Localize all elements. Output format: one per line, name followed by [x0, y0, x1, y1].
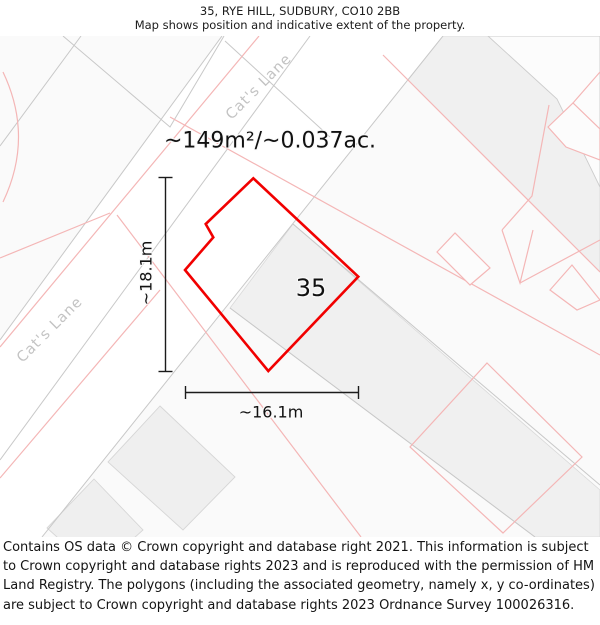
building-outline-pink-2	[550, 265, 600, 310]
page-subtitle: Map shows position and indicative extent…	[0, 18, 600, 32]
boundary-line	[0, 36, 81, 146]
building-block-center	[230, 224, 600, 537]
property-map-page: 35, RYE HILL, SUDBURY, CO10 2BB Map show…	[0, 0, 600, 625]
map-canvas: ~149m²/~0.037ac. 35 ~18.1m ~16.1m Cat's …	[0, 36, 600, 537]
area-label: ~149m²/~0.037ac.	[164, 129, 376, 154]
map-header: 35, RYE HILL, SUDBURY, CO10 2BB Map show…	[0, 0, 600, 36]
page-title: 35, RYE HILL, SUDBURY, CO10 2BB	[0, 4, 600, 18]
building-outline-pink-1	[437, 233, 490, 285]
parcel-line	[520, 240, 600, 283]
dimension-label-horizontal: ~16.1m	[239, 403, 304, 422]
attribution-text: Contains OS data © Crown copyright and d…	[0, 537, 600, 615]
plot-number-label: 35	[296, 274, 327, 302]
map-footer: Contains OS data © Crown copyright and d…	[0, 537, 600, 625]
parcel-line	[502, 230, 533, 283]
dimension-label-vertical: ~18.1m	[137, 241, 156, 306]
parcel-arc	[3, 72, 19, 202]
